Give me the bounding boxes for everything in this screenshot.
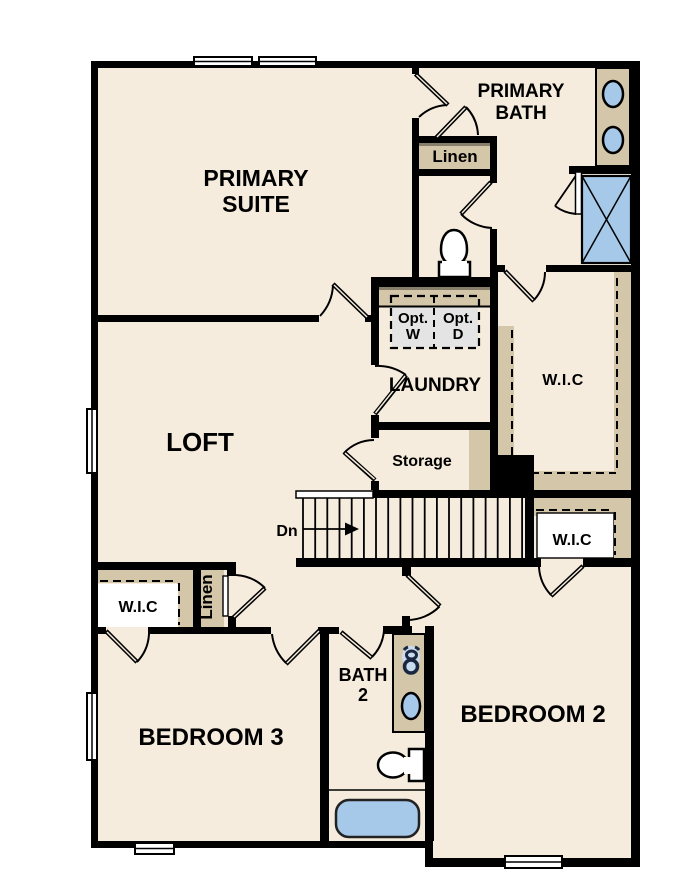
svg-text:Linen: Linen (432, 147, 477, 166)
svg-text:PRIMARY: PRIMARY (478, 81, 565, 102)
svg-text:LAUNDRY: LAUNDRY (389, 375, 482, 396)
svg-text:W.I.C: W.I.C (552, 532, 592, 549)
svg-text:Storage: Storage (392, 453, 452, 470)
svg-text:SUITE: SUITE (222, 191, 290, 217)
svg-text:D: D (453, 326, 464, 343)
svg-text:PRIMARY: PRIMARY (203, 165, 308, 191)
svg-text:Dn: Dn (276, 523, 297, 540)
svg-text:BEDROOM 3: BEDROOM 3 (138, 724, 283, 751)
svg-text:W: W (406, 326, 421, 343)
svg-text:LOFT: LOFT (166, 427, 234, 457)
svg-text:2: 2 (358, 685, 368, 705)
svg-text:Linen: Linen (197, 574, 216, 619)
svg-text:Opt.: Opt. (443, 310, 473, 327)
svg-text:BEDROOM 2: BEDROOM 2 (460, 701, 605, 728)
svg-text:W.I.C: W.I.C (118, 599, 158, 616)
svg-text:BATH: BATH (495, 103, 546, 124)
svg-text:BATH: BATH (339, 665, 388, 685)
svg-text:Opt.: Opt. (398, 310, 428, 327)
svg-text:W.I.C: W.I.C (542, 372, 584, 389)
